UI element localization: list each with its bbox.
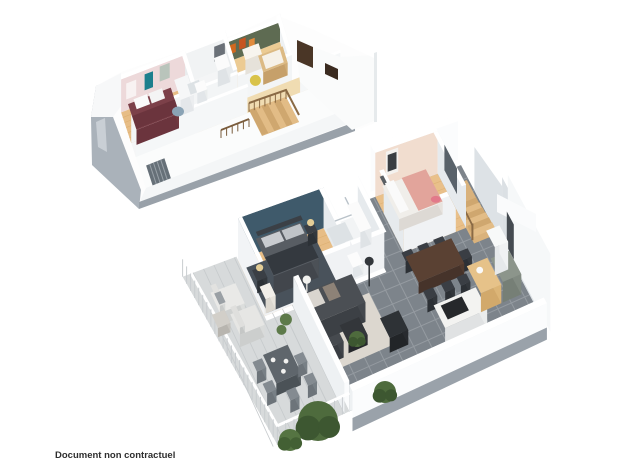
svg-text:Document non contractuel: Document non contractuel	[55, 450, 175, 461]
